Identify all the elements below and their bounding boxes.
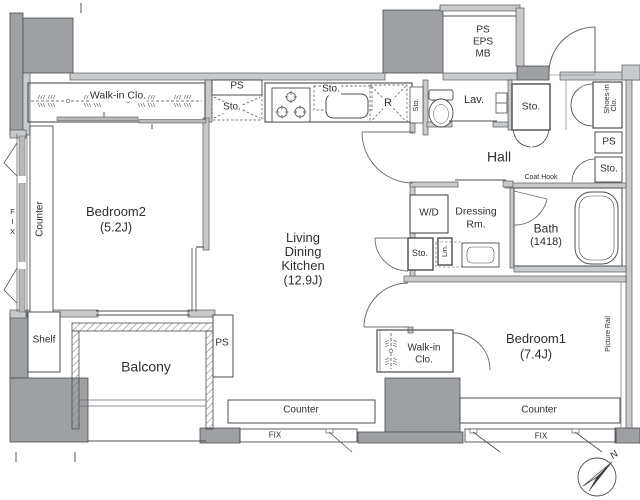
washer-dryer-label: W/D (419, 209, 438, 220)
walkin-closet1-label-2: Clo. (415, 356, 433, 367)
bedroom2-sliding-partition (192, 247, 204, 312)
kitchen-sto-overhead-label: Sto. (321, 85, 341, 96)
bedroom2-label: Bedroom2 (86, 205, 146, 219)
hall-label: Hall (487, 149, 511, 164)
dressing-label-1: Dressing (455, 206, 496, 217)
bathtub-icon (575, 192, 618, 264)
balcony-edge-lines (79, 400, 206, 441)
coat-hook-label: Coat Hook (524, 174, 557, 182)
picture-rail-label: Picture Rail (605, 316, 613, 352)
lavatory-label: Lav. (464, 95, 484, 107)
ldk-window (240, 429, 357, 452)
bedroom2-counter-label: Counter (36, 201, 47, 237)
fridge-label: R (383, 98, 393, 110)
bedroom1-fix-label: FIX (535, 433, 547, 442)
bedroom1-size-label: (7.4J) (520, 348, 552, 362)
floor-plan: Walk-in Clo. PS Sto. Sto. R Sto. Lav. St… (0, 0, 640, 500)
shelf-label: Shelf (33, 336, 56, 347)
bath-size-label: (1418) (530, 237, 562, 249)
dressing-sto-label: Sto. (412, 249, 428, 259)
walkin-closet2-label: Walk-in Clo. (89, 90, 147, 101)
hall-ps-label: PS (602, 138, 615, 149)
balcony-hatch (72, 323, 213, 429)
ldk-label-3: Kitchen (281, 259, 324, 273)
closet2-sliding-doors (57, 112, 206, 129)
hall-sto-label: Sto. (522, 101, 541, 112)
hall-storage (512, 84, 550, 147)
balcony-ps-label: PS (215, 339, 228, 350)
bath-label: Bath (534, 223, 559, 236)
bedroom2-size-label: (5.2J) (100, 221, 132, 235)
bedroom2-balcony-window (96, 311, 190, 315)
dressing-label-2: Rm. (466, 219, 485, 230)
utility-eps-label: EPS (473, 38, 493, 49)
bedroom1-counter-label: Counter (521, 406, 557, 417)
utility-mb-label: MB (476, 50, 491, 61)
ldk-label-2: Dining (285, 245, 322, 259)
shoes-closet-label-2: Clo. (610, 98, 618, 111)
kitchen-sto-corner-label: Sto. (222, 103, 242, 114)
ldk-counter-label: Counter (283, 406, 319, 417)
hall-sto2-label: Sto. (600, 165, 618, 176)
balcony-label: Balcony (121, 359, 171, 374)
ldk-label-1: Living (286, 231, 320, 245)
lav-shelf-icon (496, 93, 507, 113)
utility-ps-label: PS (476, 26, 489, 37)
ldk-size-label: (12.9J) (284, 274, 323, 288)
bedroom1-label: Bedroom1 (506, 332, 566, 346)
linen-label: Lin. (441, 245, 449, 257)
walkin-closet1-label-1: Walk-in (408, 344, 441, 355)
kitchen-sto-end-label: Sto. (412, 98, 420, 111)
kitchen-ps-label: PS (230, 82, 243, 93)
compass-icon (578, 458, 616, 496)
bedroom2-fix-label: FIX (8, 207, 16, 237)
ldk-fix-label: FIX (269, 432, 281, 441)
